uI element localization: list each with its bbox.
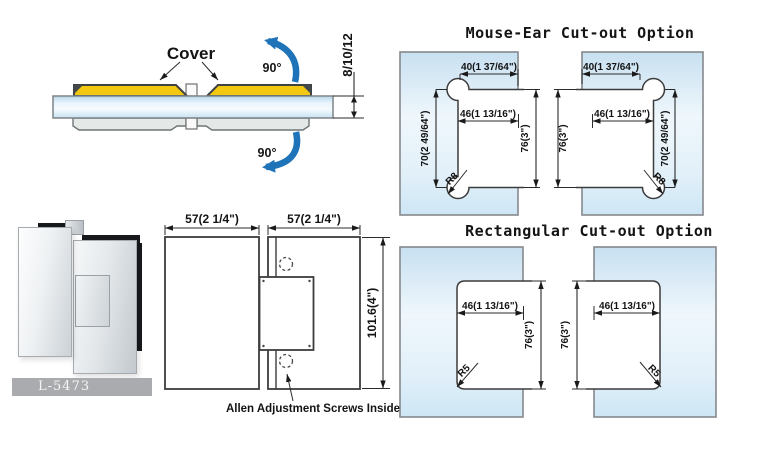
hinge-spec-sheet: { "side_view": { "cover_label": "Cover",…: [0, 0, 780, 450]
allen-note: Allen Adjustment Screws Inside: [226, 403, 400, 415]
dim-40: 40(1 37/64"): [461, 62, 517, 73]
me-diagram-left: 40(1 37/64") 46(1 13/16") 70(2 49/64") 7…: [400, 52, 540, 215]
block-corner-mark: [308, 345, 310, 347]
dim-46: 46(1 13/16"): [462, 301, 518, 312]
rectangular-section: Rectangular Cut-out Option 46(1 13/16") …: [390, 222, 780, 450]
cover-plate-right: [207, 85, 311, 96]
rotation-angle-top: 90°: [263, 61, 282, 75]
dim-70: 70(2 49/64"): [420, 111, 431, 167]
model-code-label: L-5473: [38, 379, 90, 394]
dim-70: 70(2 49/64"): [660, 111, 671, 167]
rectangular-title: Rectangular Cut-out Option: [465, 222, 713, 240]
hinge-knuckle-top: [186, 84, 197, 96]
hinge-plate-left: [18, 227, 72, 357]
dim-76: 76(3"): [558, 124, 569, 152]
thickness-arrow-down: [351, 112, 357, 119]
side-view-diagram: Cover 90° 90° 8/10/12: [30, 10, 370, 185]
clamp-body-left: [73, 118, 186, 130]
block-corner-mark: [262, 280, 264, 282]
mouse-ear-cutout-shape: [576, 79, 665, 199]
rect-diagram-left: 46(1 13/16") 76(3") R5: [400, 247, 546, 417]
glass-panel: [53, 96, 333, 118]
front-plate-left: [165, 237, 259, 389]
front-height-dim: 101.6(4"): [365, 288, 379, 338]
cover-leader-left: [160, 62, 180, 80]
model-code-banner: L-5473: [12, 378, 152, 396]
block-corner-mark: [308, 280, 310, 282]
mouse-ear-title: Mouse-Ear Cut-out Option: [466, 24, 695, 42]
me-diagram-right: 40(1 37/64") 46(1 13/16") 70(2 49/64") 7…: [554, 52, 703, 215]
hinge-center-block: [75, 275, 110, 327]
dim-46: 46(1 13/16"): [460, 109, 516, 120]
dim-76: 76(3"): [560, 321, 571, 349]
rect-diagram-right: 46(1 13/16") 76(3") R5: [560, 247, 716, 417]
front-width-right-dim: 57(2 1/4"): [287, 212, 341, 226]
glass-thickness-dim: 8/10/12: [340, 33, 355, 76]
front-view-diagram: 57(2 1/4") 57(2 1/4") 101.6(4") Allen Ad…: [155, 205, 400, 425]
dim-40: 40(1 37/64"): [583, 62, 639, 73]
dim-46: 46(1 13/16"): [599, 301, 655, 312]
clamp-body-right: [197, 118, 309, 130]
mouse-ear-section: Mouse-Ear Cut-out Option 40(1 37/64") 46…: [390, 20, 780, 222]
thickness-arrow-up: [351, 96, 357, 103]
dim-76: 76(3"): [520, 124, 531, 152]
front-width-left-dim: 57(2 1/4"): [185, 212, 239, 226]
cover-leader-right: [202, 62, 218, 80]
cover-label: Cover: [167, 44, 216, 63]
product-photo: L-5473: [8, 215, 168, 400]
cover-plate-left: [74, 85, 187, 96]
dim-46: 46(1 13/16"): [594, 109, 650, 120]
front-hinge-block: [260, 277, 314, 350]
dim-76: 76(3"): [524, 321, 535, 349]
hinge-knuckle-bottom: [186, 118, 197, 129]
rotation-angle-bottom: 90°: [258, 146, 277, 160]
block-corner-mark: [262, 345, 264, 347]
